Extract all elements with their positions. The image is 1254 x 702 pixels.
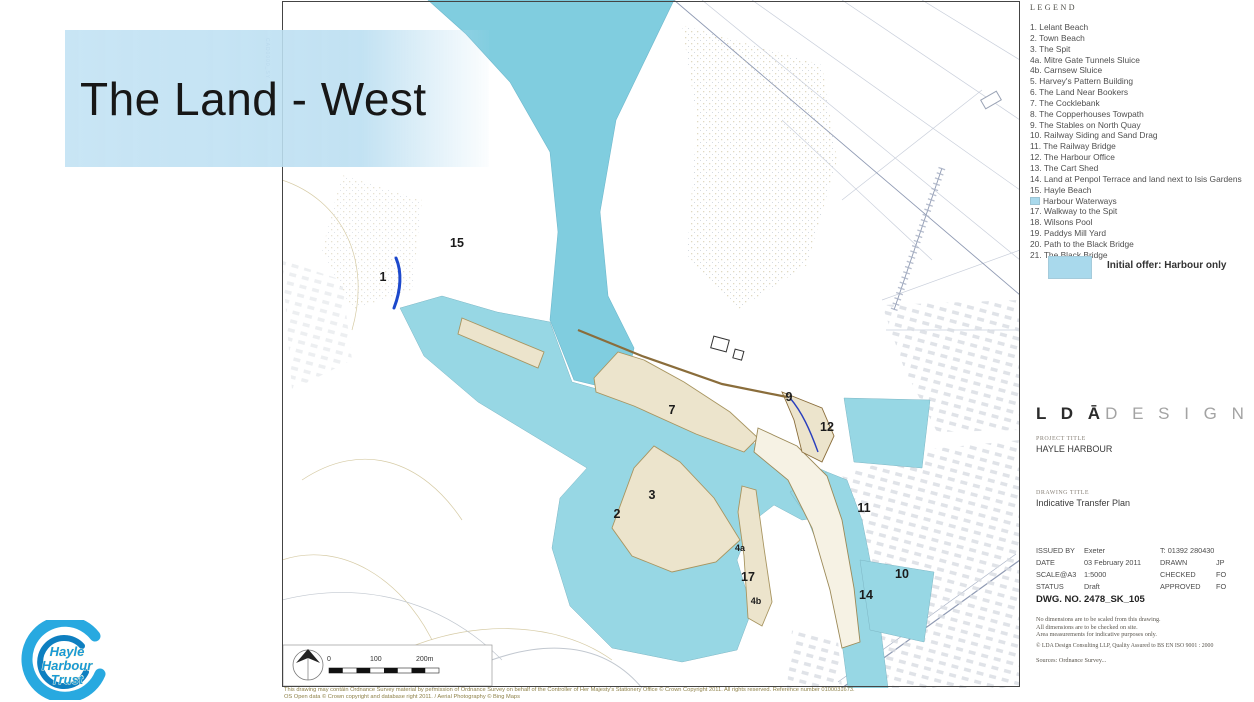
lda-copyright: © LDA Design Consulting LLP, Quality Ass…: [1036, 643, 1213, 649]
map-label-12: 12: [820, 420, 834, 434]
map-label-9: 9: [786, 390, 793, 404]
svg-text:0: 0: [327, 656, 331, 663]
lda-logo-light: D E S I G N: [1105, 404, 1249, 423]
meta-cell: FO: [1216, 582, 1234, 591]
legend-item: 9. The Stables on North Quay: [1030, 120, 1242, 131]
legend-item-label: Harbour Waterways: [1043, 196, 1117, 206]
project-title-label: PROJECT TITLE: [1036, 436, 1086, 442]
legend-item: 13. The Cart Shed: [1030, 163, 1242, 174]
project-title: HAYLE HARBOUR: [1036, 444, 1112, 454]
legend-item: 5. Harvey's Pattern Building: [1030, 76, 1242, 87]
logo-text-harbour: Harbour: [42, 658, 94, 673]
map-label-4b: 4b: [751, 596, 762, 606]
legend-item: 4a. Mitre Gate Tunnels Sluice: [1030, 55, 1242, 66]
map-label-15: 15: [450, 236, 464, 250]
drawing-title-label: DRAWING TITLE: [1036, 490, 1089, 496]
map-label-10: 10: [895, 567, 909, 581]
meta-cell: T: 01392 280430: [1160, 546, 1216, 555]
note-line: No dimensions are to be scaled from this…: [1036, 616, 1161, 624]
meta-cell: DATE: [1036, 558, 1084, 567]
titleblock-notes: No dimensions are to be scaled from this…: [1036, 616, 1161, 639]
logo-text-trust: Trust: [51, 672, 84, 687]
legend-item: 10. Railway Siding and Sand Drag: [1030, 130, 1242, 141]
meta-cell: Draft: [1084, 582, 1160, 591]
svg-text:200m: 200m: [416, 656, 434, 663]
meta-cell: ISSUED BY: [1036, 546, 1084, 555]
legend-item: 6. The Land Near Bookers: [1030, 87, 1242, 98]
legend-item: 20. Path to the Black Bridge: [1030, 239, 1242, 250]
legend-item: 18. Wilsons Pool: [1030, 217, 1242, 228]
initial-offer-swatch-icon: [1048, 256, 1092, 279]
legend-item: 4b. Carnsew Sluice: [1030, 65, 1242, 76]
map-copyright-note: This drawing may contain Ordnance Survey…: [284, 687, 855, 701]
meta-cell: CHECKED: [1160, 570, 1216, 579]
drawing-number: DWG. NO. 2478_SK_105: [1036, 594, 1145, 605]
note-line: Area measurements for indicative purpose…: [1036, 631, 1161, 639]
legend-item: 12. The Harbour Office: [1030, 152, 1242, 163]
meta-cell: JP: [1216, 558, 1234, 567]
meta-cell: SCALE@A3: [1036, 570, 1084, 579]
legend-item: 15. Hayle Beach: [1030, 185, 1242, 196]
titleblock-meta-table: ISSUED BY Exeter T: 01392 280430 DATE 03…: [1036, 546, 1234, 591]
map-label-11: 11: [857, 501, 870, 515]
map-label-7: 7: [669, 403, 676, 417]
svg-text:100: 100: [370, 656, 382, 663]
legend-heading: LEGEND: [1030, 3, 1242, 12]
legend-item: 7. The Cocklebank: [1030, 98, 1242, 109]
map-label-14: 14: [859, 588, 873, 602]
meta-cell: [1216, 546, 1234, 555]
slide-canvas: 0 100 200m 15 1 7 9 12 3 2 11 4a 17 10 4…: [0, 0, 1254, 702]
legend-item: 3. The Spit: [1030, 44, 1242, 55]
meta-cell: APPROVED: [1160, 582, 1216, 591]
map-label-3: 3: [649, 488, 656, 502]
meta-cell: FO: [1216, 570, 1234, 579]
initial-offer-label: Initial offer: Harbour only: [1107, 260, 1226, 271]
title-banner: The Land - West: [65, 30, 489, 167]
meta-cell: DRAWN: [1160, 558, 1216, 567]
lda-logo-dark: L D Ā: [1036, 404, 1105, 423]
legend-items: 1. Lelant Beach 2. Town Beach 3. The Spi…: [1030, 22, 1242, 261]
note-line: All dimensions are to be checked on site…: [1036, 624, 1161, 632]
water-swatch-icon: [1030, 197, 1040, 205]
os-copyright-line2: OS Open data © Crown copyright and datab…: [284, 694, 855, 701]
sources-note: Sources: Ordnance Survey...: [1036, 657, 1106, 664]
drawing-title: Indicative Transfer Plan: [1036, 498, 1130, 508]
legend-item: 19. Paddys Mill Yard: [1030, 228, 1242, 239]
scale-box: 0 100 200m: [283, 645, 492, 686]
legend-item: 14. Land at Penpol Terrace and land next…: [1030, 174, 1242, 185]
legend-item: 8. The Copperhouses Towpath: [1030, 109, 1242, 120]
legend-item: 2. Town Beach: [1030, 33, 1242, 44]
logo-text-hayle: Hayle: [50, 644, 85, 659]
map-label-2: 2: [614, 507, 621, 521]
map-label-1: 1: [380, 270, 387, 284]
legend-item: 11. The Railway Bridge: [1030, 141, 1242, 152]
meta-cell: STATUS: [1036, 582, 1084, 591]
hayle-harbour-trust-logo: Hayle Harbour Trust: [10, 620, 115, 700]
legend: LEGEND 1. Lelant Beach 2. Town Beach 3. …: [1030, 3, 1242, 261]
meta-cell: Exeter: [1084, 546, 1160, 555]
legend-item-harbour-waterways: Harbour Waterways: [1030, 196, 1242, 207]
lda-design-logo: L D ĀD E S I G N: [1036, 404, 1249, 424]
meta-cell: 03 February 2011: [1084, 558, 1160, 567]
page-title: The Land - West: [80, 72, 427, 126]
meta-cell: 1:5000: [1084, 570, 1160, 579]
legend-item: 1. Lelant Beach: [1030, 22, 1242, 33]
map-label-17: 17: [741, 570, 755, 584]
map-label-4a: 4a: [735, 543, 745, 553]
legend-item: 17. Walkway to the Spit: [1030, 206, 1242, 217]
